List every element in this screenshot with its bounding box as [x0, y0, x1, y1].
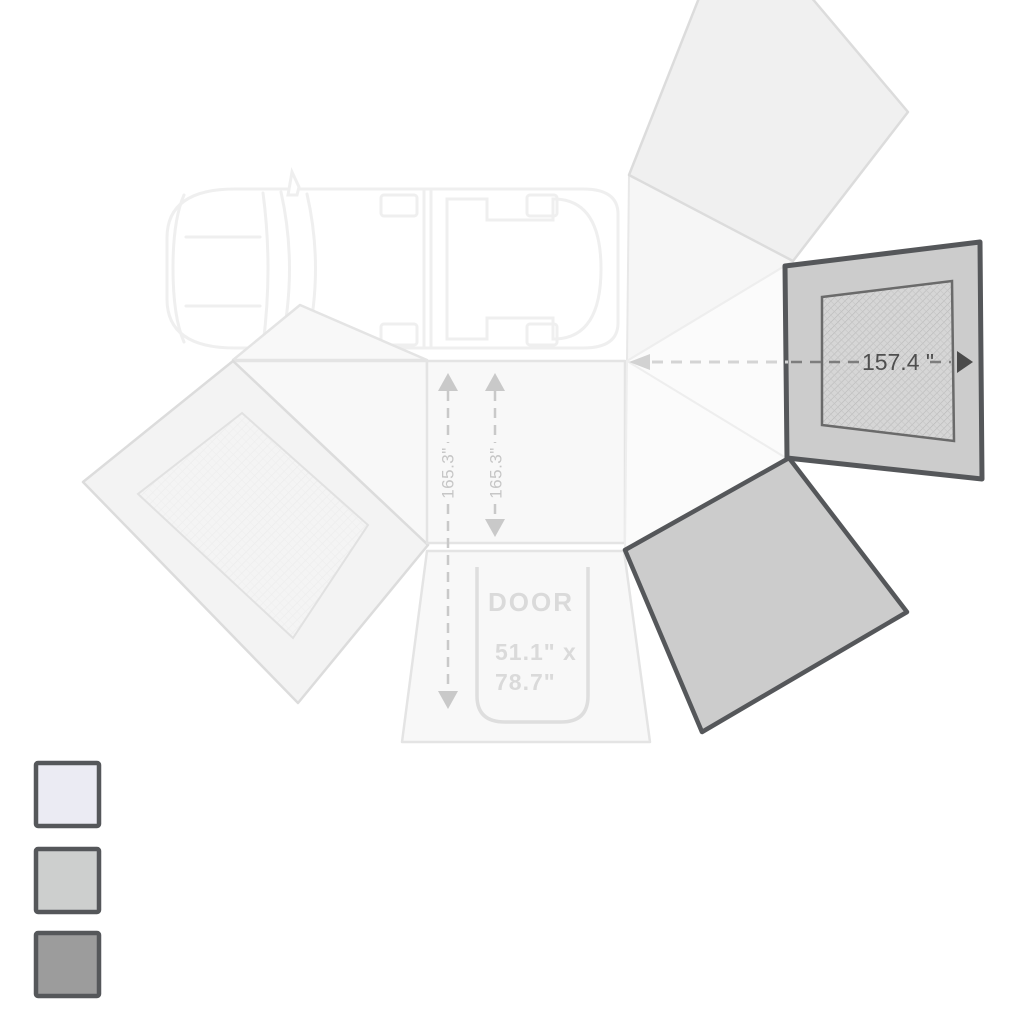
vehicle-hood-edge: [263, 193, 268, 345]
left-height-dimension-label: 165.3": [439, 447, 458, 499]
vehicle-top-view: [167, 172, 618, 348]
width-dimension-label: 157.4 ": [862, 349, 934, 375]
diagram-canvas: 165.3" 165.3" 157.4 " DOOR 51.1" x 78.7": [0, 0, 1024, 1024]
color-swatch-light: [36, 763, 99, 826]
vehicle-front-bumper-line: [173, 195, 184, 342]
color-swatch-dark: [36, 933, 99, 996]
door-size-label-line1: 51.1" x: [495, 639, 577, 665]
awning-dimensions-diagram: 165.3" 165.3" 157.4 " DOOR 51.1" x 78.7": [0, 0, 1024, 1024]
roof-crossbar-mount-front-top: [381, 195, 417, 216]
vehicle-cab-divider: [424, 190, 431, 347]
door-label: DOOR: [488, 587, 574, 617]
awning-fold-over-vehicle: [233, 305, 427, 360]
color-legend: [36, 763, 99, 996]
vehicle-antenna-icon: [288, 172, 299, 195]
door-size-label-line2: 78.7": [495, 669, 556, 695]
right-height-dimension-label: 165.3": [487, 447, 506, 499]
roof-rack-outline: [447, 199, 601, 339]
color-swatch-medium: [36, 849, 99, 912]
